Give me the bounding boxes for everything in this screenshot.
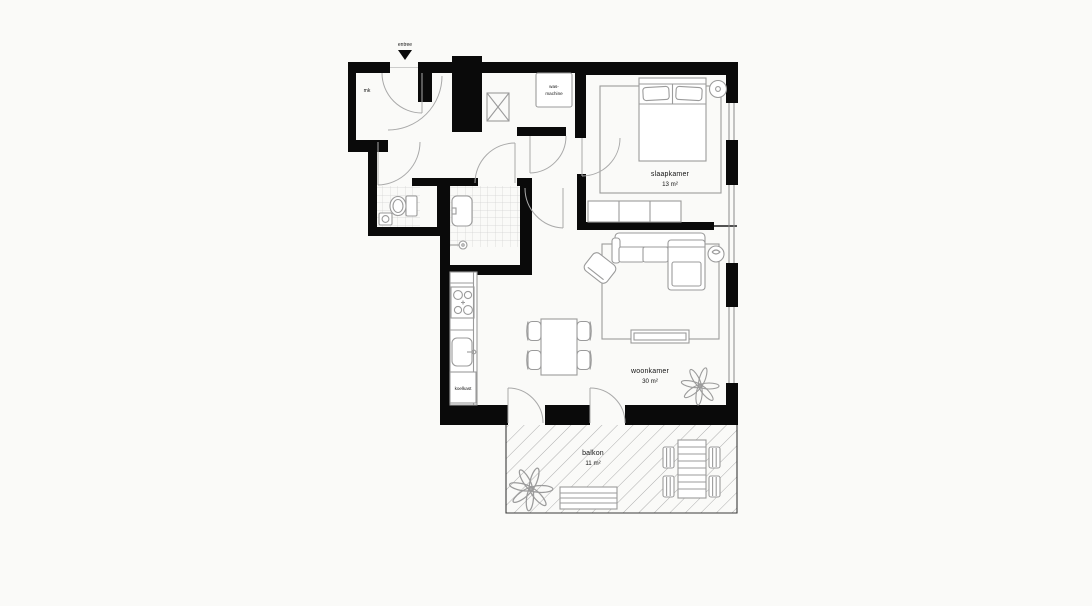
living-room-name-label: woonkamer bbox=[630, 368, 669, 375]
entry-door-arc bbox=[382, 73, 422, 113]
bedroom-area-label: 13 m² bbox=[662, 181, 678, 188]
balcony-chair-icon bbox=[663, 476, 674, 497]
balcony-area-label: 11 m² bbox=[585, 460, 600, 467]
plant-icon bbox=[681, 367, 719, 405]
dining-table-icon bbox=[541, 319, 577, 375]
meter-cupboard-label: mk bbox=[364, 88, 371, 94]
chair-icon bbox=[527, 322, 541, 341]
balcony-name-label: balkon bbox=[582, 450, 604, 457]
shaft-icon bbox=[487, 93, 509, 121]
laundry-door-arc bbox=[530, 136, 566, 173]
entrance-label: entree bbox=[398, 42, 412, 48]
balcony-chair-icon bbox=[663, 447, 674, 468]
dining-set bbox=[527, 319, 592, 375]
duct-column bbox=[452, 56, 482, 132]
laundry-room: was- machine bbox=[487, 73, 572, 173]
living-room-area-label: 30 m² bbox=[642, 378, 658, 385]
pillow bbox=[643, 86, 670, 100]
fridge-label: koelkast bbox=[455, 386, 473, 391]
floor-plan-drawing: entree mk was- machine bbox=[0, 0, 1092, 606]
tv-bench-icon bbox=[631, 330, 689, 343]
floor-plan-canvas: entree mk was- machine bbox=[0, 0, 1092, 606]
chair-icon bbox=[527, 351, 541, 370]
wardrobe-icon bbox=[588, 201, 681, 222]
toilet-sink-icon bbox=[379, 213, 392, 225]
bathroom-door-arc bbox=[475, 143, 515, 183]
chair-icon bbox=[577, 322, 591, 341]
kitchen-sink-icon bbox=[452, 338, 476, 366]
pillow bbox=[676, 86, 703, 100]
balcony: balkon 11 m² bbox=[506, 425, 737, 513]
bedroom-door-arc bbox=[582, 138, 620, 176]
balcony-door-arc bbox=[590, 388, 625, 423]
chair-icon bbox=[577, 351, 591, 370]
fridge-icon: koelkast bbox=[450, 372, 476, 403]
kitchen: koelkast bbox=[450, 272, 477, 405]
bathroom bbox=[450, 143, 520, 249]
toilet-icon bbox=[390, 196, 417, 216]
bedroom: slaapkamer 13 m² bbox=[582, 78, 727, 222]
entrance-arrow-icon bbox=[398, 50, 412, 60]
balcony-table-icon bbox=[678, 440, 706, 498]
balcony-door-arc bbox=[508, 388, 543, 423]
balcony-chair-icon bbox=[709, 476, 720, 497]
bedroom-name-label: slaapkamer bbox=[651, 171, 690, 178]
bed-icon bbox=[639, 78, 706, 161]
washing-machine-label-2: machine bbox=[545, 91, 563, 96]
sofa-icon bbox=[612, 233, 705, 290]
washing-machine-icon: was- machine bbox=[536, 73, 572, 107]
washbasin-icon bbox=[452, 196, 472, 226]
nightstand-icon bbox=[710, 81, 727, 98]
side-table-icon bbox=[708, 246, 724, 262]
washing-machine-label-1: was- bbox=[549, 84, 559, 89]
balcony-chair-icon bbox=[709, 447, 720, 468]
balcony-bench-icon bbox=[560, 487, 617, 509]
